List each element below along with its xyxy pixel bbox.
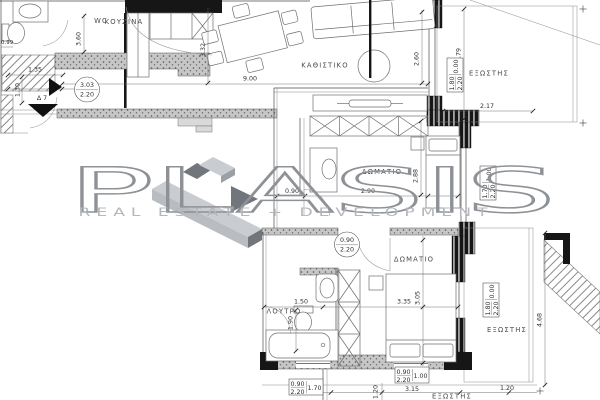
bed-bedroom2 xyxy=(369,274,456,362)
wardrobe-bedroom2 xyxy=(338,270,360,366)
svg-text:1.80: 1.80 xyxy=(485,301,492,315)
sofa xyxy=(311,0,435,39)
site-hatch-band xyxy=(544,240,600,334)
wc-sink xyxy=(13,1,48,22)
dim-south-offset: 1.20 xyxy=(373,385,380,399)
dim-entry-width: 1.35 xyxy=(28,67,42,74)
dim-bedroom2-depth: 3.05 xyxy=(415,291,422,305)
dim-dining-depth: 3.32 xyxy=(200,43,207,57)
bedroom2-door-arc xyxy=(357,238,390,271)
svg-text:3.03: 3.03 xyxy=(80,82,94,89)
door-tag-bedroom2: 0.90 2.20 xyxy=(335,232,360,257)
svg-text:0.00: 0.00 xyxy=(453,59,460,73)
dim-living-width: 9.00 xyxy=(243,76,257,83)
svg-text:2.20: 2.20 xyxy=(290,389,304,396)
dim-bedroom2-width: 3.35 xyxy=(397,299,411,306)
dim-bathroom-width: 1.50 xyxy=(294,299,308,306)
room-label-balcony-bottom: ΕΞΩΣΤΗΣ xyxy=(432,393,472,400)
svg-text:1.80: 1.80 xyxy=(449,76,456,90)
round-table xyxy=(358,50,390,82)
room-label-balcony-right: ΕΞΩΣΤΗΣ xyxy=(487,326,527,334)
window-tag-bedroom2-east: 1.80 2.20 0.00 xyxy=(483,283,500,317)
partition-line xyxy=(369,0,371,78)
dim-balcony-top-width: 2.17 xyxy=(480,103,494,110)
direction-arrow-right xyxy=(49,78,62,96)
svg-text:0.90: 0.90 xyxy=(340,237,354,244)
bathroom-sink xyxy=(316,274,338,302)
svg-text:2.20: 2.20 xyxy=(340,247,354,254)
dim-balcony-right-width: 1.20 xyxy=(500,385,514,392)
dim-wc-side: 3.60 xyxy=(76,32,83,46)
plasis-tagline-text: REAL ESTATE + DEVELOPMENT xyxy=(79,205,494,219)
svg-text:2.20: 2.20 xyxy=(80,92,94,99)
room-label-living: ΚΑΘΙΣΤΙΚΟ xyxy=(301,62,349,70)
dim-bathroom-depth: 1.90 xyxy=(288,316,295,330)
dim-balcony-right-depth: 4.68 xyxy=(537,313,544,327)
dim-living-depth: 2.60 xyxy=(414,52,421,66)
svg-text:0.00: 0.00 xyxy=(489,284,496,298)
room-label-balcony-top: ΕΞΩΣΤΗΣ xyxy=(469,70,509,78)
window-tag-bathroom-south: 0.90 2.20 1.70 xyxy=(289,379,323,396)
window-tag-bedroom2-south: 0.90 2.20 1.00 xyxy=(395,367,429,384)
window-tag-living-east: 1.80 2.20 0.00 xyxy=(447,58,464,92)
level-marker-label: Δ 7 xyxy=(37,95,47,102)
room-label-bedroom2: ΔΩΜΑΤΙΟ xyxy=(394,256,434,264)
svg-text:0.90: 0.90 xyxy=(396,369,410,376)
svg-text:2.20: 2.20 xyxy=(457,76,464,90)
room-label-bathroom: ΛΟΥΤΡΟ xyxy=(267,308,302,316)
dim-entry-depth: 1.30 xyxy=(15,83,22,97)
tv-bench xyxy=(313,95,427,111)
floor-plan-page: WC ΚΟΥΖΙΝΑ ΚΑΘΙΣΤΙΚΟ ΔΩΜΑΤΙΟ ΔΩΜΑΤΙΟ ΛΟΥ… xyxy=(0,0,600,400)
svg-text:2.20: 2.20 xyxy=(493,301,500,315)
svg-text:0.90: 0.90 xyxy=(290,381,304,388)
upper-south-wall xyxy=(57,109,277,118)
wc-door-arc xyxy=(43,20,68,46)
svg-text:2.20: 2.20 xyxy=(396,377,410,384)
svg-text:1.70: 1.70 xyxy=(307,385,321,392)
door-tag-entry: 3.03 2.20 xyxy=(75,77,100,102)
svg-text:1.00: 1.00 xyxy=(413,373,427,380)
bathtub xyxy=(266,330,338,361)
dim-edge-small: 0.99 xyxy=(1,40,14,46)
room-label-kitchen: ΚΟΥΖΙΝΑ xyxy=(105,18,144,26)
floor-plan-canvas: WC ΚΟΥΖΙΝΑ ΚΑΘΙΣΤΙΚΟ ΔΩΜΑΤΙΟ ΔΩΜΑΤΙΟ ΛΟΥ… xyxy=(0,0,600,400)
wardrobe-bedroom1 xyxy=(310,116,428,136)
dim-south-width: 3.15 xyxy=(405,386,419,393)
